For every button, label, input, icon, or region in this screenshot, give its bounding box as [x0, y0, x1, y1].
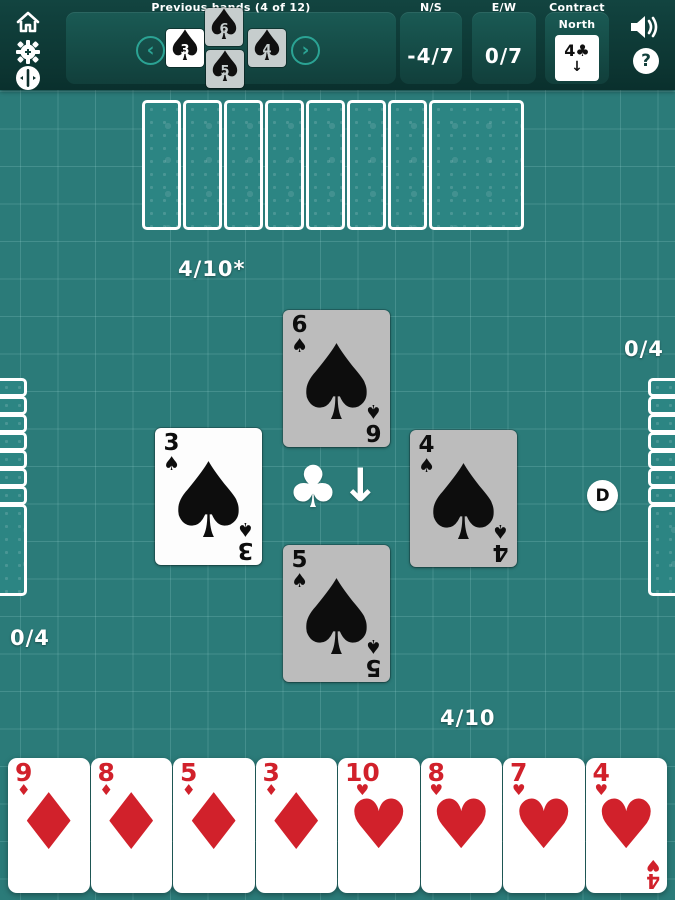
sound-button[interactable]: [628, 12, 660, 42]
spade-icon: ♠: [365, 402, 382, 420]
hand-card-5-diamond[interactable]: 5♦♦: [173, 758, 255, 893]
card-back: [0, 396, 27, 415]
card-back: [0, 486, 27, 505]
card-back: [0, 504, 27, 596]
card-back: [648, 450, 675, 469]
hand-card-7-heart[interactable]: 7♥♥: [503, 758, 585, 893]
ns-score-value: -4/7: [400, 44, 462, 68]
mini-card-right: ♠4: [248, 29, 286, 67]
hand-card-9-diamond[interactable]: 9♦♦: [8, 758, 90, 893]
heart-icon: ♥: [338, 792, 420, 860]
heart-icon: ♥: [421, 792, 503, 860]
ns-score-label: N/S: [400, 1, 462, 14]
next-hand-button[interactable]: ›: [291, 36, 320, 65]
down-arrow-icon: ↓: [571, 60, 583, 74]
contract-card: 4♣ ↓: [555, 35, 599, 81]
ew-score-panel: 0/7: [472, 12, 536, 84]
north-hand: [142, 100, 524, 230]
gear-icon: [14, 38, 42, 66]
club-icon: ♣: [575, 41, 589, 60]
card-rank: 4: [492, 540, 509, 562]
play-direction-arrow-icon: ↓: [341, 462, 380, 508]
diamond-icon: ♦: [173, 784, 255, 862]
card-back: [388, 100, 427, 230]
south-score: 4/10: [440, 706, 496, 730]
spade-icon: ♠: [365, 637, 382, 655]
card-back: [0, 468, 27, 487]
hand-card-3-diamond[interactable]: 3♦♦: [256, 758, 338, 893]
south-hand: 9♦♦8♦♦5♦♦3♦♦10♥♥8♥♥7♥♥4♥♥4♥: [8, 758, 667, 893]
spade-icon: ♠: [237, 520, 254, 538]
orientation-icon: [14, 64, 42, 92]
card-index: 3♠: [237, 520, 254, 560]
mini-card-left: ♠3: [166, 29, 204, 67]
ns-score-panel: -4/7: [400, 12, 462, 84]
card-back: [265, 100, 304, 230]
spade-icon: ♠: [492, 522, 509, 540]
card-index: 5♠: [365, 637, 382, 677]
card-back: [648, 378, 675, 397]
speaker-icon: [628, 12, 660, 42]
card-back: [347, 100, 386, 230]
heart-icon: ♥: [503, 792, 585, 860]
top-bar: Previous hands (4 of 12) ‹ › ♠6♠3♠4♠5 -4…: [0, 0, 675, 90]
contract-panel: North 4♣ ↓: [545, 12, 609, 84]
game-screen: Previous hands (4 of 12) ‹ › ♠6♠3♠4♠5 -4…: [0, 0, 675, 900]
card-back: [224, 100, 263, 230]
mini-card-top: ♠6: [205, 8, 243, 46]
heart-icon: ♥: [646, 858, 660, 873]
mini-card-rank: 5: [206, 64, 244, 79]
card-back: [648, 414, 675, 433]
card-rank: 6: [365, 420, 382, 442]
mini-card-bottom: ♠5: [206, 50, 244, 88]
west-score: 0/4: [10, 626, 50, 650]
trick-card-west: 3♠♠3♠: [155, 428, 262, 565]
card-back: [306, 100, 345, 230]
diamond-icon: ♦: [91, 784, 173, 862]
mini-card-rank: 3: [166, 43, 204, 58]
trick-card-south: 5♠♠5♠: [283, 545, 390, 682]
settings-button[interactable]: [14, 38, 42, 66]
card-rank: 5: [365, 655, 382, 677]
card-back: [183, 100, 222, 230]
card-index: 4♠: [492, 522, 509, 562]
card-back: [648, 468, 675, 487]
east-score: 0/4: [624, 337, 664, 361]
hand-card-8-heart[interactable]: 8♥♥: [421, 758, 503, 893]
card-back: [0, 378, 27, 397]
hand-card-8-diamond[interactable]: 8♦♦: [91, 758, 173, 893]
heart-icon: ♥: [586, 792, 668, 860]
home-icon: [14, 8, 42, 36]
trick-card-east: 4♠♠4♠: [410, 430, 517, 567]
home-button[interactable]: [14, 8, 42, 36]
diamond-icon: ♦: [256, 784, 338, 862]
mini-card-rank: 4: [248, 43, 286, 58]
trick-card-north: 6♠♠6♠: [283, 310, 390, 447]
contract-player: North: [545, 18, 609, 31]
diamond-icon: ♦: [8, 784, 90, 862]
ew-score-label: E/W: [472, 1, 536, 14]
contract-bid: 4♣: [564, 42, 589, 60]
question-icon: ?: [641, 51, 651, 71]
contract-label: Contract: [545, 1, 609, 14]
card-back: [0, 432, 27, 451]
lead-suit-club-icon: ♣: [287, 458, 339, 516]
previous-hand-button[interactable]: ‹: [136, 36, 165, 65]
card-index: 6♠: [365, 402, 382, 442]
dealer-badge: D: [587, 480, 618, 511]
mini-card-rank: 6: [205, 22, 243, 37]
card-back: [648, 486, 675, 505]
card-back: [648, 432, 675, 451]
chevron-left-icon: ‹: [147, 41, 155, 60]
hand-card-10-heart[interactable]: 10♥♥: [338, 758, 420, 893]
card-back: [142, 100, 181, 230]
orientation-button[interactable]: [14, 64, 42, 92]
west-hand: [0, 378, 27, 596]
card-index: 4♥: [646, 858, 660, 890]
card-rank: 3: [237, 538, 254, 560]
chevron-right-icon: ›: [302, 41, 310, 60]
card-back: [0, 450, 27, 469]
east-hand: [648, 378, 675, 596]
card-back: [429, 100, 524, 230]
card-back: [648, 396, 675, 415]
card-back: [648, 504, 675, 596]
help-button[interactable]: ?: [633, 48, 659, 74]
card-back: [0, 414, 27, 433]
ew-score-value: 0/7: [472, 44, 536, 68]
hand-card-4-heart[interactable]: 4♥♥4♥: [586, 758, 668, 893]
north-score: 4/10*: [178, 257, 246, 281]
